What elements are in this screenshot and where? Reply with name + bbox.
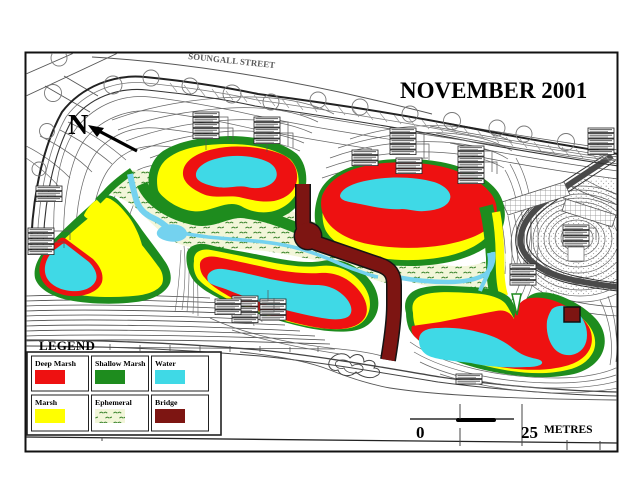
svg-text:0: 0 xyxy=(416,423,425,442)
svg-text:Ephemeral: Ephemeral xyxy=(95,398,133,407)
svg-text:NOVEMBER 2001: NOVEMBER 2001 xyxy=(400,78,587,103)
svg-text:N: N xyxy=(68,110,88,141)
svg-text:25: 25 xyxy=(521,423,538,442)
svg-text:Water: Water xyxy=(155,359,176,368)
svg-text:Bridge: Bridge xyxy=(155,398,178,407)
svg-text:Shallow Marsh: Shallow Marsh xyxy=(95,359,146,368)
svg-text:Marsh: Marsh xyxy=(35,398,58,407)
svg-text:METRES: METRES xyxy=(544,424,593,436)
svg-text:Deep Marsh: Deep Marsh xyxy=(35,359,77,368)
svg-text:LEGEND: LEGEND xyxy=(39,338,95,353)
